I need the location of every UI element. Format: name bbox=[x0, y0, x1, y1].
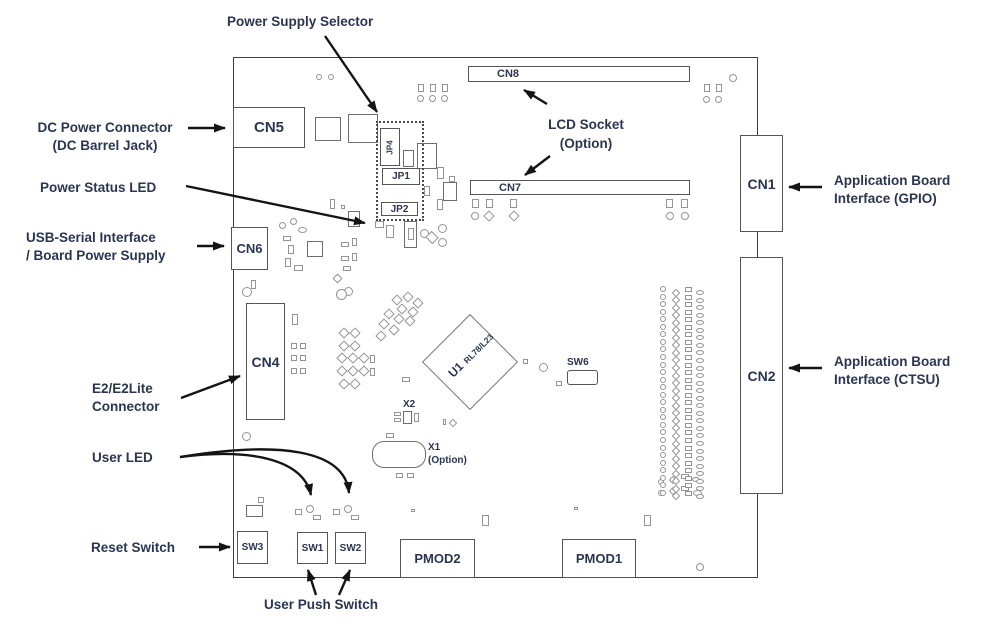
callout-usb-serial: USB-Serial Interface / Board Power Suppl… bbox=[26, 229, 166, 265]
smd-pad bbox=[685, 468, 692, 473]
smd-pad bbox=[685, 438, 692, 443]
smd-pad bbox=[341, 256, 349, 261]
smd-pad bbox=[300, 343, 306, 349]
smd-pad bbox=[438, 238, 447, 247]
usb-serial-line1: USB-Serial Interface bbox=[26, 229, 166, 247]
crystal-x1-label: X1 bbox=[428, 442, 440, 453]
smd-pad bbox=[685, 332, 692, 337]
pmod2-label: PMOD2 bbox=[414, 551, 460, 566]
smd-pad bbox=[666, 199, 673, 208]
callout-lcd-socket: LCD Socket (Option) bbox=[540, 115, 632, 153]
smd-pad bbox=[370, 355, 375, 363]
smd-pad bbox=[471, 212, 479, 220]
cn8-label: CN8 bbox=[497, 68, 519, 80]
switch-sw1: SW1 bbox=[297, 532, 328, 564]
smd-pad bbox=[660, 445, 666, 451]
smd-pad bbox=[696, 313, 704, 318]
smd-pad bbox=[660, 294, 666, 300]
smd-pad bbox=[298, 227, 307, 233]
smd-pad bbox=[696, 328, 704, 333]
smd-pad bbox=[417, 95, 424, 102]
connector-cn7: CN7 bbox=[470, 180, 690, 195]
smd-pad bbox=[352, 253, 357, 261]
smd-pad bbox=[685, 415, 692, 420]
smd-pad bbox=[396, 473, 403, 478]
smd-pad bbox=[715, 96, 722, 103]
usb-serial-line2: / Board Power Supply bbox=[26, 247, 166, 265]
smd-pad bbox=[351, 515, 359, 520]
dc-power-line2: (DC Barrel Jack) bbox=[24, 137, 186, 155]
smd-pad bbox=[291, 368, 297, 374]
smd-pad bbox=[685, 347, 692, 352]
smd-pad bbox=[660, 392, 666, 398]
lcd-socket-line2: (Option) bbox=[540, 134, 632, 153]
smd-pad bbox=[660, 362, 666, 368]
smd-pad bbox=[283, 236, 291, 241]
smd-pad bbox=[442, 84, 448, 92]
smd-pad bbox=[348, 211, 360, 227]
smd-pad bbox=[424, 186, 430, 196]
connector-cn8: CN8 bbox=[468, 66, 690, 82]
smd-pad bbox=[443, 419, 446, 425]
smd-pad bbox=[644, 515, 651, 526]
smd-pad bbox=[696, 298, 704, 303]
ctsu-line1: Application Board bbox=[834, 353, 950, 371]
smd-pad bbox=[660, 354, 666, 360]
jp2-label: JP2 bbox=[391, 204, 409, 215]
smd-pad bbox=[352, 238, 357, 246]
smd-pad bbox=[258, 497, 264, 503]
smd-pad bbox=[370, 368, 375, 376]
switch-sw6-label: SW6 bbox=[567, 357, 589, 368]
dc-power-line1: DC Power Connector bbox=[24, 119, 186, 137]
smd-pad bbox=[411, 509, 415, 512]
smd-pad bbox=[685, 325, 692, 330]
smd-pad bbox=[660, 437, 666, 443]
smd-pad bbox=[696, 464, 704, 469]
smd-pad bbox=[472, 199, 479, 208]
smd-pad bbox=[291, 343, 297, 349]
smd-pad bbox=[313, 515, 321, 520]
smd-pad bbox=[660, 490, 666, 496]
smd-pad bbox=[285, 258, 291, 267]
smd-pad bbox=[685, 408, 692, 413]
smd-pad bbox=[306, 505, 314, 513]
switch-sw6 bbox=[567, 370, 598, 385]
smd-pad bbox=[443, 182, 457, 201]
smd-pad bbox=[685, 453, 692, 458]
smd-pad bbox=[660, 422, 666, 428]
smd-pad bbox=[696, 479, 704, 484]
smd-pad bbox=[696, 411, 704, 416]
smd-pad bbox=[685, 317, 692, 322]
connector-cn4: CN4 bbox=[246, 303, 285, 420]
smd-pad bbox=[429, 95, 436, 102]
smd-pad bbox=[300, 355, 306, 361]
gpio-line1: Application Board bbox=[834, 172, 950, 190]
callout-app-board-ctsu: Application Board Interface (CTSU) bbox=[834, 353, 950, 389]
cn2-label: CN2 bbox=[747, 368, 775, 384]
ctsu-line2: Interface (CTSU) bbox=[834, 371, 950, 389]
crystal-x1-note: (Option) bbox=[428, 455, 467, 466]
smd-pad bbox=[295, 509, 302, 515]
smd-pad bbox=[242, 287, 252, 297]
smd-pad bbox=[685, 287, 692, 292]
smd-pad bbox=[681, 199, 688, 208]
smd-pad bbox=[375, 221, 384, 228]
smd-pad bbox=[685, 340, 692, 345]
sw3-label: SW3 bbox=[242, 542, 264, 553]
crystal-x1 bbox=[372, 441, 426, 468]
smd-pad bbox=[316, 74, 322, 80]
smd-pad bbox=[437, 199, 443, 210]
smd-pad bbox=[328, 74, 334, 80]
smd-pad bbox=[330, 199, 335, 209]
sw2-label: SW2 bbox=[340, 543, 362, 554]
smd-pad bbox=[307, 241, 323, 257]
smd-pad bbox=[437, 167, 444, 179]
smd-pad bbox=[341, 242, 349, 247]
smd-pad bbox=[430, 84, 436, 92]
e2-line1: E2/E2Lite bbox=[92, 380, 160, 398]
smd-pad bbox=[402, 377, 410, 382]
smd-pad bbox=[696, 563, 704, 571]
smd-pad bbox=[666, 212, 674, 220]
smd-pad bbox=[246, 505, 263, 517]
smd-pad bbox=[574, 507, 578, 510]
smd-pad bbox=[408, 228, 414, 240]
connector-cn6: CN6 bbox=[231, 227, 268, 270]
e2-line2: Connector bbox=[92, 398, 160, 416]
smd-pad bbox=[394, 418, 401, 422]
smd-pad bbox=[729, 74, 737, 82]
jumper-jp2: JP2 bbox=[381, 202, 418, 216]
callout-dc-power-connector: DC Power Connector (DC Barrel Jack) bbox=[24, 119, 186, 155]
smd-pad bbox=[344, 505, 352, 513]
cn4-label: CN4 bbox=[251, 354, 279, 370]
switch-sw2: SW2 bbox=[335, 532, 366, 564]
smd-pad bbox=[703, 96, 710, 103]
callout-reset-switch: Reset Switch bbox=[91, 539, 175, 557]
jumper-jp1: JP1 bbox=[382, 168, 420, 185]
smd-pad bbox=[685, 385, 692, 390]
callout-e2-connector: E2/E2Lite Connector bbox=[92, 380, 160, 416]
smd-pad bbox=[348, 114, 378, 143]
smd-pad bbox=[288, 245, 294, 254]
smd-pad bbox=[696, 494, 704, 499]
smd-pad bbox=[685, 363, 692, 368]
board-layout-figure: CN5 CN6 CN4 CN1 CN2 CN8 CN7 SW3 SW1 SW2 … bbox=[0, 0, 991, 639]
callout-app-board-gpio: Application Board Interface (GPIO) bbox=[834, 172, 950, 208]
smd-pad bbox=[290, 218, 297, 225]
smd-pad bbox=[556, 381, 562, 386]
smd-pad bbox=[660, 369, 666, 375]
jp4-label: JP4 bbox=[385, 140, 394, 154]
smd-pad bbox=[407, 473, 414, 478]
smd-pad bbox=[660, 309, 666, 315]
smd-pad bbox=[685, 483, 692, 488]
smd-pad bbox=[414, 413, 419, 422]
smd-pad bbox=[685, 310, 692, 315]
smd-pad bbox=[660, 286, 666, 292]
connector-pmod2: PMOD2 bbox=[400, 539, 475, 578]
smd-pad bbox=[251, 280, 256, 289]
connector-cn5: CN5 bbox=[233, 107, 305, 148]
smd-pad bbox=[292, 314, 298, 325]
smd-pad bbox=[685, 423, 692, 428]
pmod1-label: PMOD1 bbox=[576, 551, 622, 566]
smd-pad bbox=[660, 324, 666, 330]
smd-pad bbox=[333, 509, 340, 515]
cn5-label: CN5 bbox=[254, 119, 284, 136]
jp1-label: JP1 bbox=[392, 171, 410, 182]
lcd-socket-line1: LCD Socket bbox=[540, 115, 632, 134]
smd-pad bbox=[510, 199, 517, 208]
smd-pad bbox=[343, 266, 351, 271]
smd-pad bbox=[685, 446, 692, 451]
smd-pad bbox=[685, 295, 692, 300]
smd-pad bbox=[291, 355, 297, 361]
smd-pad bbox=[403, 411, 412, 424]
smd-pad bbox=[716, 84, 722, 92]
smd-pad bbox=[660, 475, 666, 481]
smd-pad bbox=[394, 412, 401, 416]
smd-pad bbox=[660, 407, 666, 413]
smd-pad bbox=[685, 400, 692, 405]
arrow-e2-connector bbox=[181, 376, 240, 398]
smd-pad bbox=[386, 225, 394, 238]
smd-pad bbox=[660, 460, 666, 466]
connector-cn1: CN1 bbox=[740, 135, 783, 232]
smd-pad bbox=[696, 366, 704, 371]
callout-power-supply-selector: Power Supply Selector bbox=[227, 13, 373, 31]
sw1-label: SW1 bbox=[302, 543, 324, 554]
smd-pad bbox=[696, 343, 704, 348]
switch-sw3: SW3 bbox=[237, 531, 268, 564]
smd-pad bbox=[294, 265, 303, 271]
smd-pad bbox=[539, 363, 548, 372]
connector-cn2: CN2 bbox=[740, 257, 783, 494]
smd-pad bbox=[685, 476, 692, 481]
cn6-label: CN6 bbox=[236, 241, 262, 256]
crystal-x2-label: X2 bbox=[403, 399, 415, 410]
smd-pad bbox=[386, 433, 394, 438]
smd-pad bbox=[341, 205, 345, 209]
smd-pad bbox=[441, 95, 448, 102]
smd-pad bbox=[523, 359, 528, 364]
smd-pad bbox=[696, 358, 704, 363]
smd-pad bbox=[696, 381, 704, 386]
cn7-label: CN7 bbox=[499, 182, 521, 194]
callout-user-push-switch: User Push Switch bbox=[264, 596, 378, 614]
smd-pad bbox=[685, 461, 692, 466]
smd-pad bbox=[696, 426, 704, 431]
smd-pad bbox=[486, 199, 493, 208]
connector-pmod1: PMOD1 bbox=[562, 539, 636, 578]
callout-user-led: User LED bbox=[92, 449, 153, 467]
smd-pad bbox=[300, 368, 306, 374]
smd-pad bbox=[696, 396, 704, 401]
smd-pad bbox=[685, 355, 692, 360]
smd-pad bbox=[685, 370, 692, 375]
cn1-label: CN1 bbox=[747, 176, 775, 192]
smd-pad bbox=[438, 224, 447, 233]
smd-pad bbox=[660, 377, 666, 383]
jumper-jp4: JP4 bbox=[380, 128, 400, 166]
smd-pad bbox=[418, 84, 424, 92]
gpio-line2: Interface (GPIO) bbox=[834, 190, 950, 208]
smd-pad bbox=[696, 449, 704, 454]
smd-pad bbox=[685, 393, 692, 398]
smd-pad bbox=[315, 117, 341, 141]
smd-pad bbox=[685, 491, 692, 496]
callout-power-status-led: Power Status LED bbox=[40, 179, 156, 197]
smd-pad bbox=[242, 432, 251, 441]
smd-pad bbox=[696, 441, 704, 446]
smd-pad bbox=[660, 339, 666, 345]
smd-pad bbox=[685, 378, 692, 383]
smd-pad bbox=[704, 84, 710, 92]
smd-pad bbox=[681, 212, 689, 220]
smd-pad bbox=[482, 515, 489, 526]
smd-pad bbox=[336, 289, 347, 300]
smd-pad bbox=[279, 222, 286, 229]
smd-pad bbox=[696, 290, 704, 295]
smd-pad bbox=[685, 430, 692, 435]
smd-pad bbox=[685, 302, 692, 307]
